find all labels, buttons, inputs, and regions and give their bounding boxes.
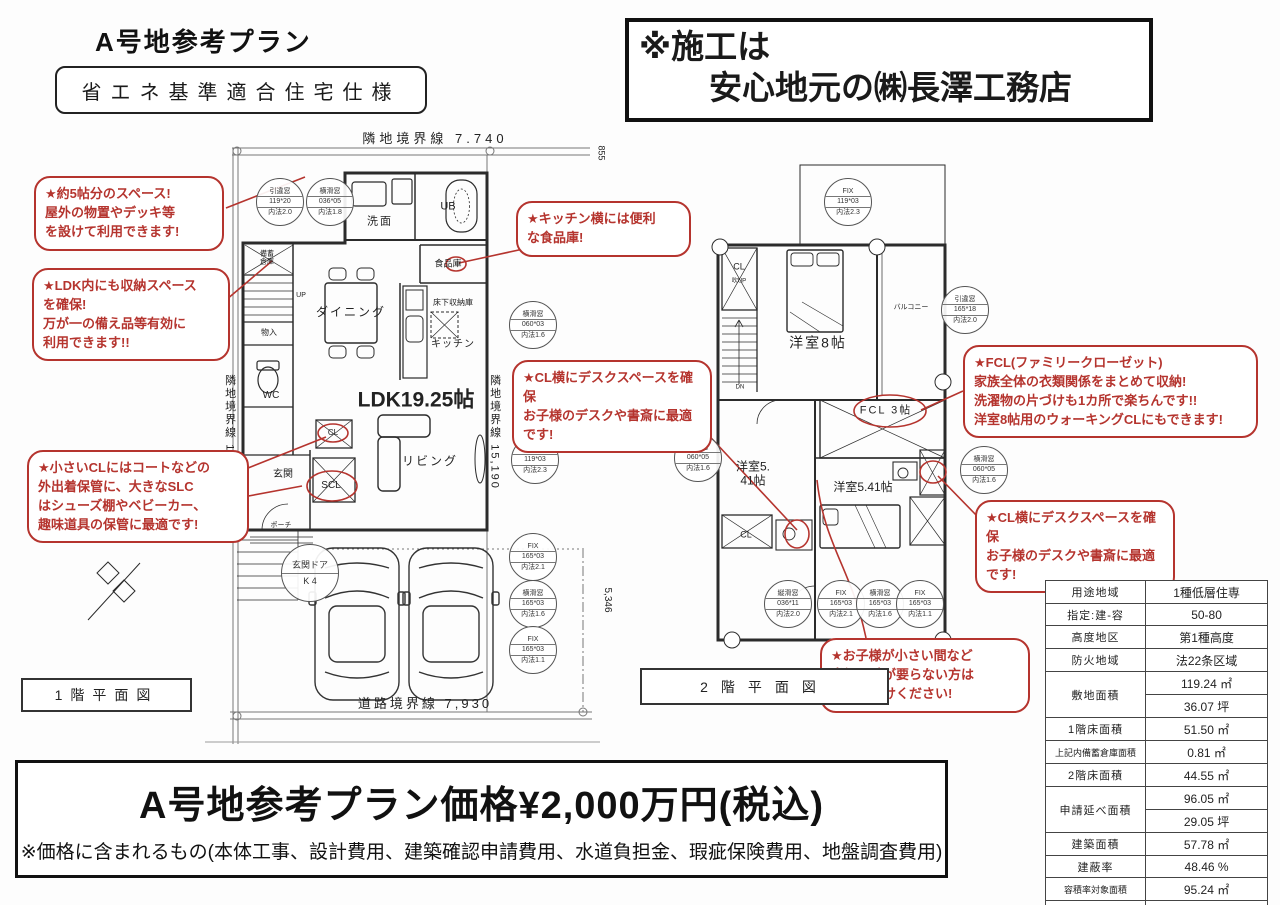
spec-label-cell: 建蔽率 — [1046, 856, 1146, 878]
spec-label-cell: 容積率 — [1046, 901, 1146, 905]
spec-label-cell: 上記内備蓄倉庫面積 — [1046, 741, 1146, 764]
spec-table-row: 用途地域1種低層住専 — [1046, 581, 1268, 604]
spec-value-cell: 29.05 坪 — [1146, 810, 1268, 833]
spec-table-row: 建蔽率48.46 % — [1046, 856, 1268, 878]
spec-table-row: 申請延べ面積96.05 ㎡ — [1046, 787, 1268, 810]
spec-table-row: 2階床面積44.55 ㎡ — [1046, 764, 1268, 787]
annotation-callout-fcl: ★FCL(ファミリークローゼット) 家族全体の衣類関係をまとめて収納! 洗濯物の… — [963, 345, 1258, 438]
annotation-callout-outdoor-space: ★約5帖分のスペース! 屋外の物置やデッキ等 を設けて利用できます! — [34, 176, 224, 251]
spec-label-cell: 敷地面積 — [1046, 672, 1146, 718]
floor1-caption: 1階平面図 — [21, 678, 192, 712]
spec-value-cell: 44.55 ㎡ — [1146, 764, 1268, 787]
spec-value-cell: 36.07 坪 — [1146, 695, 1268, 718]
spec-label-cell: 申請延べ面積 — [1046, 787, 1146, 833]
spec-value-cell: 51.50 ㎡ — [1146, 718, 1268, 741]
spec-value-cell: 法22条区域 — [1146, 649, 1268, 672]
spec-label-cell: 指定:建-容 — [1046, 604, 1146, 626]
spec-value-cell: 第1種高度 — [1146, 626, 1268, 649]
spec-label-cell: 容積率対象面積 — [1046, 878, 1146, 901]
price-note-text: ※価格に含まれるもの(本体工事、設計費用、建築確認申請費用、水道負担金、瑕疵保険… — [18, 837, 945, 864]
spec-label-cell: 1階床面積 — [1046, 718, 1146, 741]
spec-value-cell: 57.78 ㎡ — [1146, 833, 1268, 856]
spec-label-cell: 高度地区 — [1046, 626, 1146, 649]
spec-value-cell: 119.24 ㎡ — [1146, 672, 1268, 695]
spec-table: 用途地域1種低層住専指定:建-容50-80高度地区第1種高度防火地域法22条区域… — [1045, 580, 1268, 905]
spec-table-row: 敷地面積119.24 ㎡ — [1046, 672, 1268, 695]
spec-table-row: 容積率対象面積95.24 ㎡ — [1046, 878, 1268, 901]
spec-value-cell: 95.24 ㎡ — [1146, 878, 1268, 901]
annotation-callout-ldk-storage: ★LDK内にも収納スペース を確保! 万が一の備え品等有効に 利用できます!! — [32, 268, 230, 361]
spec-label-cell: 用途地域 — [1046, 581, 1146, 604]
price-main-text: A号地参考プラン価格¥2,000万円(税込) — [18, 774, 945, 829]
flyer-sheet: A号地参考プラン 省エネ基準適合住宅仕様 ※施工は 安心地元の㈱長澤工務店 隣地… — [0, 0, 1280, 905]
spec-table-body: 用途地域1種低層住専指定:建-容50-80高度地区第1種高度防火地域法22条区域… — [1046, 581, 1268, 905]
spec-table-row: 建築面積57.78 ㎡ — [1046, 833, 1268, 856]
floor2-caption: 2階平面図 — [640, 668, 889, 705]
spec-table-row: 防火地域法22条区域 — [1046, 649, 1268, 672]
spec-value-cell: 1種低層住専 — [1146, 581, 1268, 604]
spec-value-cell: 48.46 % — [1146, 856, 1268, 878]
spec-label-cell: 2階床面積 — [1046, 764, 1146, 787]
spec-value-cell: 50-80 — [1146, 604, 1268, 626]
spec-table-row: 指定:建-容50-80 — [1046, 604, 1268, 626]
spec-label-cell: 防火地域 — [1046, 649, 1146, 672]
annotation-callout-scl-closet: ★小さいCLにはコートなどの 外出着保管に、大きなSLC はシューズ棚やベビーカ… — [27, 450, 249, 543]
spec-table-row: 1階床面積51.50 ㎡ — [1046, 718, 1268, 741]
spec-table-row: 上記内備蓄倉庫面積0.81 ㎡ — [1046, 741, 1268, 764]
price-banner: A号地参考プラン価格¥2,000万円(税込) ※価格に含まれるもの(本体工事、設… — [15, 760, 948, 878]
spec-value-cell: 0.81 ㎡ — [1146, 741, 1268, 764]
spec-table-row: 容積率79.88 % — [1046, 901, 1268, 905]
spec-table-row: 高度地区第1種高度 — [1046, 626, 1268, 649]
spec-value-cell: 79.88 % — [1146, 901, 1268, 905]
spec-label-cell: 建築面積 — [1046, 833, 1146, 856]
annotation-callout-pantry: ★キッチン横には便利 な食品庫! — [516, 201, 691, 257]
annotation-callout-desk-floor1: ★CL横にデスクスペースを確保 お子様のデスクや書斎に最適 です! — [512, 360, 712, 453]
spec-value-cell: 96.05 ㎡ — [1146, 787, 1268, 810]
